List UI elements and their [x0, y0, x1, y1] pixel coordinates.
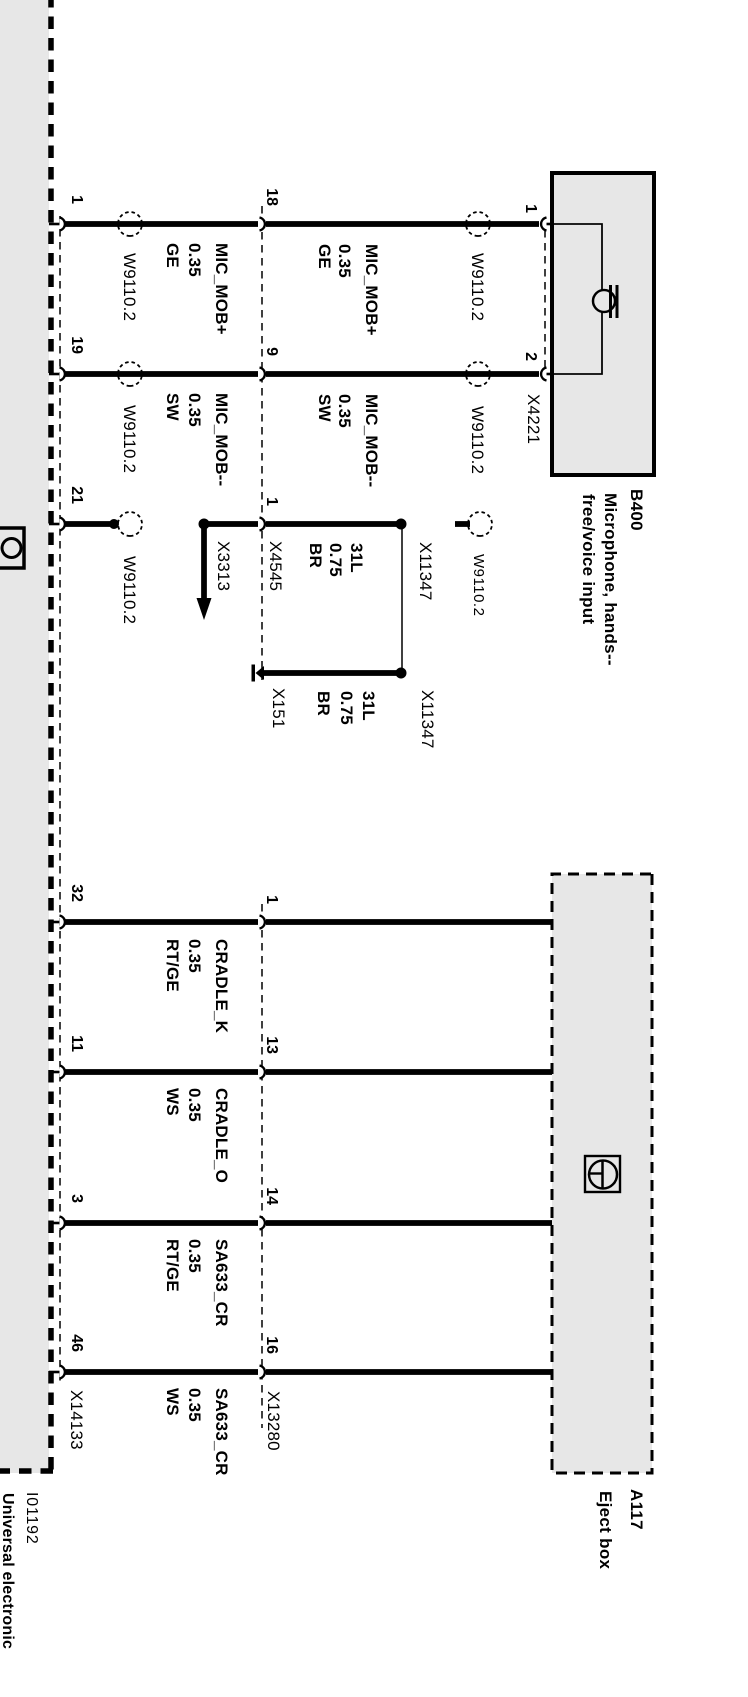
svg-text:13: 13 [263, 1036, 280, 1054]
svg-text:B400: B400 [627, 489, 646, 531]
svg-text:X11347: X11347 [416, 542, 435, 601]
svg-text:X13280: X13280 [264, 1391, 283, 1451]
svg-text:SA633_CR: SA633_CR [212, 1239, 231, 1327]
svg-text:31L: 31L [359, 691, 378, 721]
svg-text:X4221: X4221 [524, 394, 543, 444]
svg-text:31L: 31L [347, 543, 366, 573]
svg-text:X4545: X4545 [266, 541, 285, 591]
svg-text:W9110.2: W9110.2 [468, 406, 487, 474]
svg-text:W9110.2: W9110.2 [120, 405, 139, 473]
svg-text:11: 11 [68, 1035, 85, 1052]
svg-text:14: 14 [263, 1187, 280, 1205]
svg-text:0.35: 0.35 [185, 1088, 204, 1122]
svg-text:1: 1 [263, 497, 280, 506]
svg-text:CRADLE_O: CRADLE_O [212, 1088, 231, 1183]
svg-text:21: 21 [68, 486, 85, 504]
svg-text:CRADLE_K: CRADLE_K [212, 939, 231, 1034]
svg-text:1: 1 [522, 204, 539, 213]
svg-text:32: 32 [68, 884, 85, 902]
svg-text:3: 3 [68, 1194, 85, 1203]
svg-text:Eject box: Eject box [596, 1491, 615, 1570]
svg-text:18: 18 [263, 188, 280, 206]
svg-text:SA633_CR: SA633_CR [212, 1388, 231, 1476]
svg-text:2: 2 [522, 352, 539, 361]
svg-text:RT/GE: RT/GE [163, 939, 182, 992]
svg-text:WS: WS [163, 1388, 182, 1416]
svg-text:W9110.2: W9110.2 [120, 253, 139, 321]
svg-text:BR: BR [306, 543, 325, 568]
svg-text:free/voice input: free/voice input [579, 494, 598, 624]
svg-text:W9110.2: W9110.2 [468, 253, 487, 321]
svg-text:X3313: X3313 [214, 541, 233, 591]
svg-text:Microphone, hands--: Microphone, hands-- [601, 493, 620, 666]
svg-text:16: 16 [263, 1336, 280, 1354]
svg-text:SW: SW [163, 393, 182, 422]
svg-text:MIC_MOB+: MIC_MOB+ [362, 244, 381, 336]
svg-text:0.35: 0.35 [335, 244, 354, 278]
svg-text:BR: BR [314, 691, 333, 716]
svg-text:I01192: I01192 [23, 1492, 40, 1545]
svg-text:0.75: 0.75 [337, 691, 356, 725]
svg-text:0.35: 0.35 [185, 1239, 204, 1273]
svg-text:GE: GE [163, 243, 182, 268]
svg-text:W9110.2: W9110.2 [470, 554, 487, 616]
svg-text:1: 1 [68, 195, 85, 204]
svg-text:MIC_MOB+: MIC_MOB+ [212, 243, 231, 335]
svg-text:MIC_MOB--: MIC_MOB-- [212, 393, 231, 486]
svg-text:WS: WS [163, 1088, 182, 1116]
svg-text:1: 1 [263, 895, 280, 904]
svg-text:A117: A117 [627, 1489, 646, 1530]
svg-text:X151: X151 [269, 688, 288, 729]
svg-text:X14133: X14133 [67, 1390, 86, 1450]
svg-text:0.35: 0.35 [185, 939, 204, 973]
svg-text:0.75: 0.75 [326, 543, 345, 577]
svg-text:W9110.2: W9110.2 [120, 556, 139, 624]
svg-text:X11347: X11347 [418, 690, 437, 749]
svg-text:46: 46 [68, 1334, 85, 1352]
svg-text:SW: SW [315, 394, 334, 423]
svg-text:0.35: 0.35 [185, 393, 204, 427]
svg-text:MIC_MOB--: MIC_MOB-- [362, 394, 381, 487]
svg-text:9: 9 [263, 347, 280, 356]
svg-text:Universal electronic: Universal electronic [0, 1493, 16, 1649]
svg-text:0.35: 0.35 [335, 394, 354, 428]
svg-text:0.35: 0.35 [185, 243, 204, 277]
svg-text:GE: GE [315, 244, 334, 269]
svg-text:0.35: 0.35 [185, 1388, 204, 1422]
svg-text:19: 19 [68, 336, 85, 354]
svg-text:RT/GE: RT/GE [163, 1239, 182, 1292]
